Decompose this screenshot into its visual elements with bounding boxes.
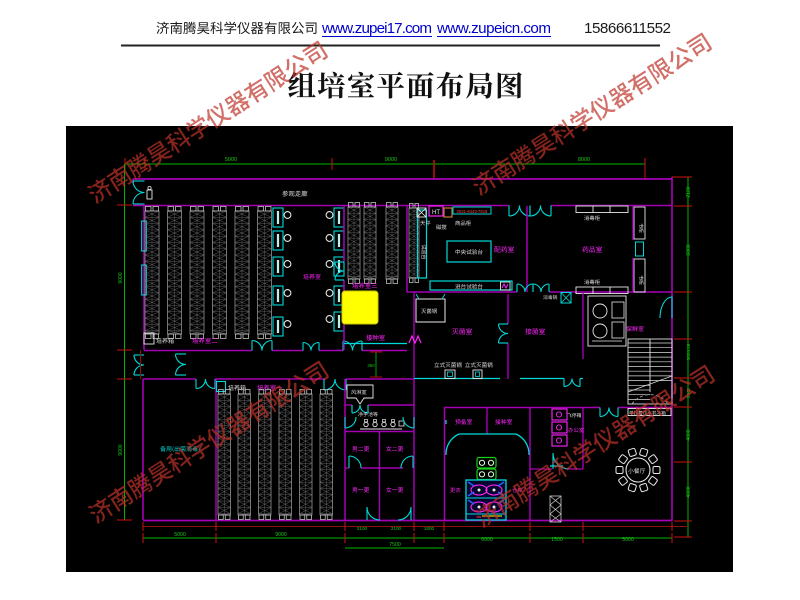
svg-text:5000: 5000 — [225, 157, 237, 163]
svg-text:1800: 1800 — [424, 526, 435, 531]
svg-text:8000: 8000 — [578, 157, 590, 163]
svg-text:7500: 7500 — [389, 542, 401, 548]
svg-text:书柜: 书柜 — [638, 275, 645, 285]
svg-text:9000: 9000 — [385, 157, 397, 163]
svg-text:9000: 9000 — [118, 272, 124, 283]
svg-text:HT: HT — [432, 210, 440, 216]
svg-text:9000: 9000 — [118, 444, 124, 455]
svg-text:15866611552: 15866611552 — [584, 20, 671, 37]
svg-text:3024.16: 3024.16 — [686, 343, 691, 360]
svg-text:6000: 6000 — [481, 537, 493, 543]
svg-text:9000: 9000 — [275, 532, 287, 538]
svg-text:350: 350 — [367, 363, 375, 368]
svg-text:6000: 6000 — [686, 244, 692, 255]
svg-text:1500: 1500 — [551, 537, 563, 543]
svg-text:2100: 2100 — [391, 526, 402, 531]
svg-text:5000: 5000 — [622, 537, 634, 543]
svg-text:4000: 4000 — [686, 486, 692, 497]
svg-text:2100: 2100 — [357, 526, 368, 531]
svg-text:5000: 5000 — [174, 532, 186, 538]
svg-text:4000: 4000 — [686, 429, 692, 440]
svg-text:www.zupei17.com: www.zupei17.com — [321, 20, 432, 37]
svg-text:2100: 2100 — [686, 186, 692, 197]
svg-text:www.zupeicn.com: www.zupeicn.com — [436, 20, 551, 37]
svg-text:0531-8443-7818: 0531-8443-7818 — [457, 209, 488, 214]
svg-text:试验台: 试验台 — [420, 244, 427, 259]
svg-text:书柜: 书柜 — [638, 223, 645, 233]
